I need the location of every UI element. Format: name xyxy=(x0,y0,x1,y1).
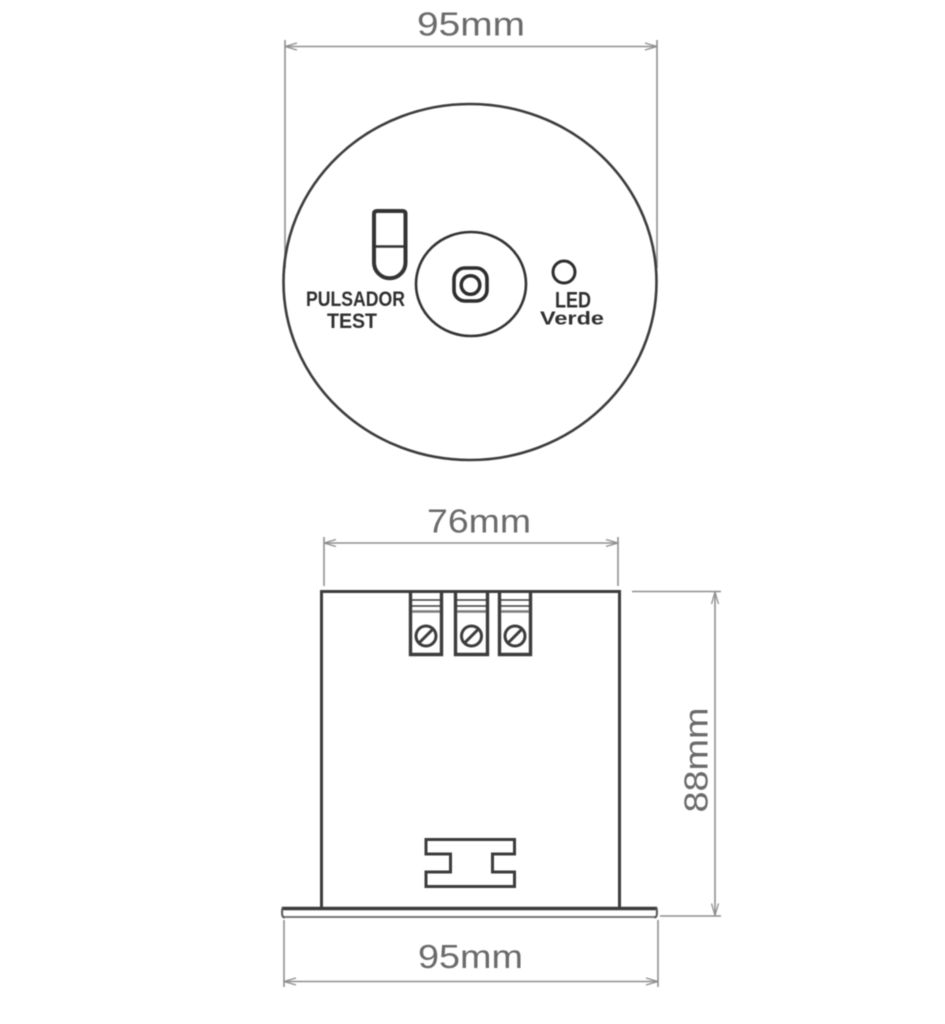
svg-text:Verde: Verde xyxy=(540,309,604,329)
svg-text:95mm: 95mm xyxy=(417,6,525,43)
svg-text:TEST: TEST xyxy=(327,310,377,333)
svg-text:95mm: 95mm xyxy=(418,938,523,975)
svg-text:76mm: 76mm xyxy=(427,503,531,540)
svg-text:PULSADOR: PULSADOR xyxy=(306,288,405,311)
svg-text:88mm: 88mm xyxy=(678,708,715,813)
